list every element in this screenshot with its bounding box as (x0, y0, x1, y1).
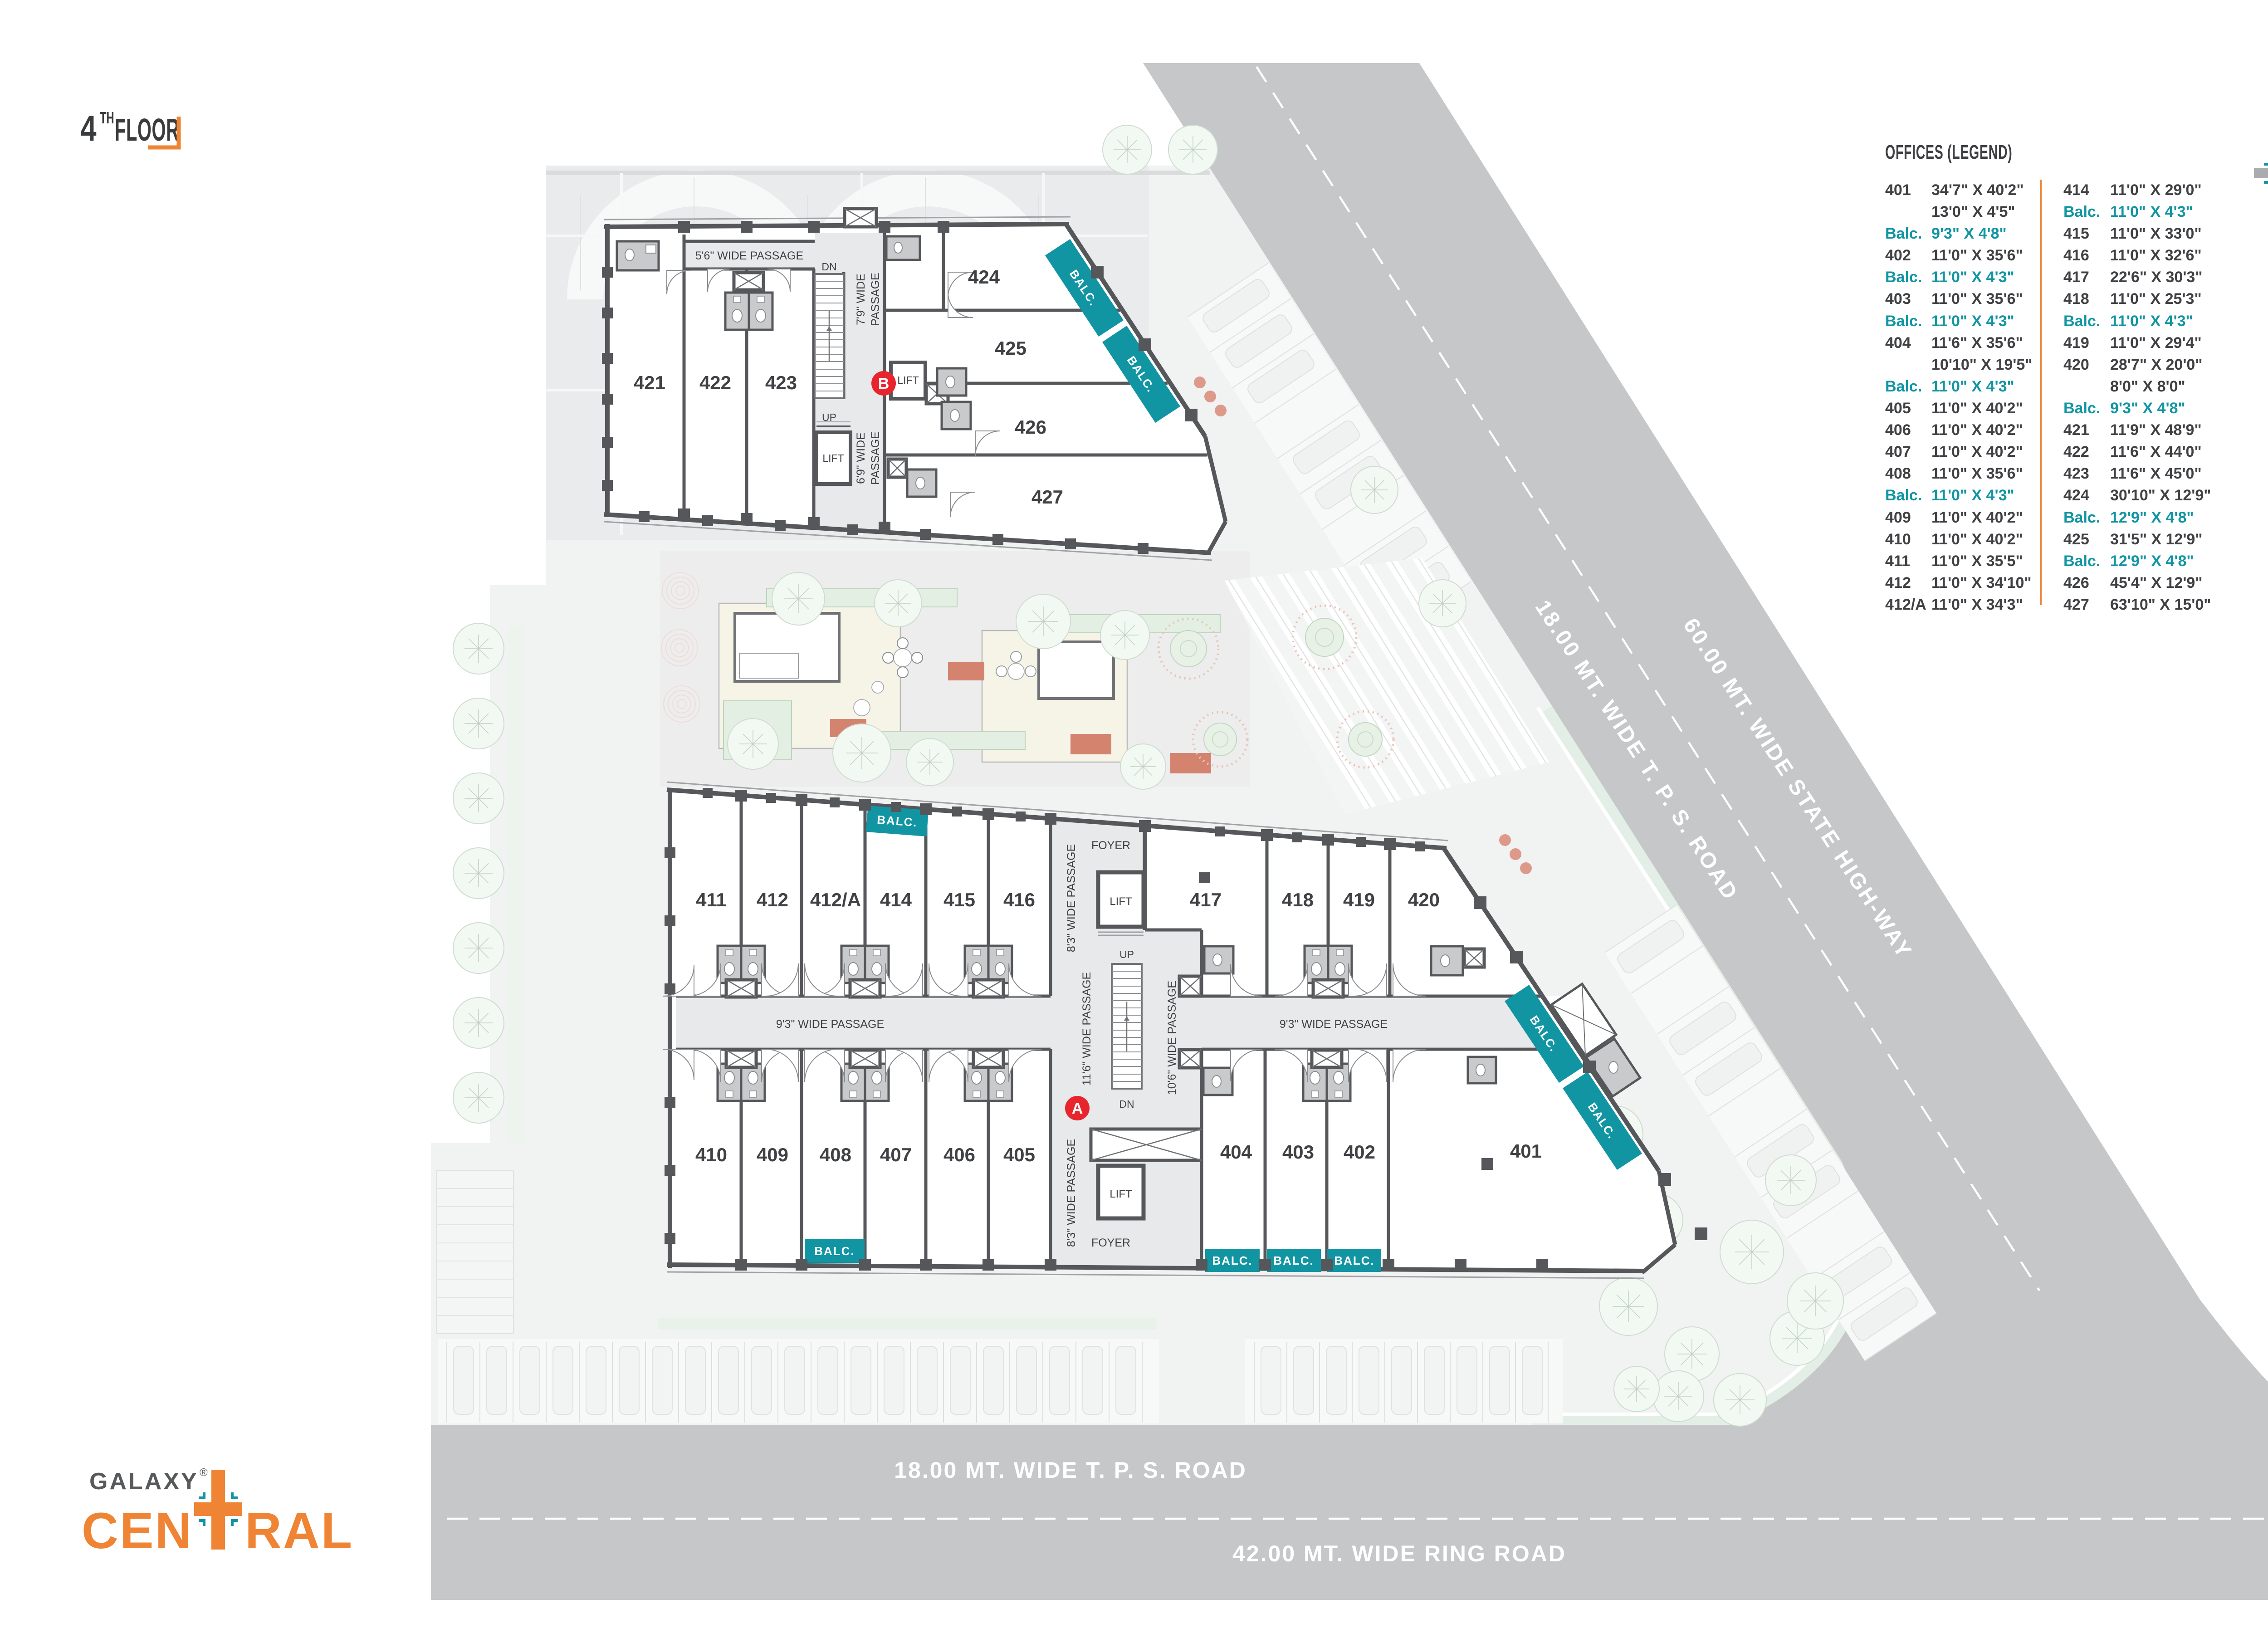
svg-text:11'0" X 4'3": 11'0" X 4'3" (1931, 378, 2014, 395)
svg-text:11'0" X 34'10": 11'0" X 34'10" (1931, 574, 2031, 592)
svg-text:Balc.: Balc. (2063, 203, 2100, 220)
svg-text:422: 422 (2063, 443, 2089, 460)
svg-text:11'0" X 40'2": 11'0" X 40'2" (1931, 531, 2023, 548)
svg-text:CEN: CEN (82, 1502, 193, 1559)
svg-text:22'6" X 30'3": 22'6" X 30'3" (2110, 269, 2202, 286)
svg-text:412/A: 412/A (810, 889, 861, 910)
svg-text:Balc.: Balc. (2063, 400, 2100, 417)
svg-text:418: 418 (1282, 889, 1314, 910)
svg-text:9'3" WIDE PASSAGE: 9'3" WIDE PASSAGE (1280, 1018, 1388, 1031)
svg-text:11'0" X 34'3": 11'0" X 34'3" (1931, 596, 2023, 613)
svg-text:409: 409 (1885, 509, 1911, 526)
svg-text:A: A (1072, 1100, 1083, 1117)
svg-text:416: 416 (2063, 247, 2089, 264)
svg-text:424: 424 (968, 266, 1000, 288)
svg-text:FOYER: FOYER (1091, 1237, 1130, 1249)
svg-text:401: 401 (1510, 1140, 1542, 1162)
svg-text:419: 419 (2063, 334, 2089, 352)
svg-text:407: 407 (1885, 443, 1911, 460)
svg-text:409: 409 (757, 1144, 788, 1165)
svg-text:FOYER: FOYER (1091, 839, 1130, 852)
svg-text:405: 405 (1003, 1144, 1035, 1165)
svg-text:Balc.: Balc. (1885, 487, 1922, 504)
svg-text:9'3" X 4'8": 9'3" X 4'8" (1931, 225, 2007, 242)
svg-text:11'0" X 40'2": 11'0" X 40'2" (1931, 421, 2023, 439)
svg-text:11'6" X 45'0": 11'6" X 45'0" (2110, 465, 2202, 482)
svg-text:421: 421 (634, 372, 665, 393)
svg-text:11'0" X 40'2": 11'0" X 40'2" (1931, 400, 2023, 417)
svg-text:11'0" X 32'6": 11'0" X 32'6" (2110, 247, 2202, 264)
svg-text:423: 423 (2063, 465, 2089, 482)
svg-text:Balc.: Balc. (1885, 269, 1922, 286)
svg-text:410: 410 (695, 1144, 727, 1165)
svg-text:DN: DN (1119, 1098, 1134, 1110)
svg-text:411: 411 (696, 889, 727, 910)
svg-text:BALC.: BALC. (1334, 1254, 1374, 1267)
svg-text:Balc.: Balc. (1885, 378, 1922, 395)
svg-text:402: 402 (1344, 1141, 1375, 1163)
svg-text:407: 407 (880, 1144, 912, 1165)
svg-text:BALC.: BALC. (814, 1244, 855, 1258)
svg-text:34'7" X 40'2": 34'7" X 40'2" (1931, 181, 2024, 199)
svg-text:11'0" X 29'4": 11'0" X 29'4" (2110, 334, 2202, 352)
svg-text:11'0" X 4'3": 11'0" X 4'3" (1931, 269, 2014, 286)
svg-text:42.00 MT. WIDE RING ROAD: 42.00 MT. WIDE RING ROAD (1232, 1541, 1566, 1566)
svg-text:404: 404 (1885, 334, 1911, 352)
svg-text:11'0" X 25'3": 11'0" X 25'3" (2110, 290, 2202, 308)
svg-text:420: 420 (1408, 889, 1440, 910)
svg-text:8'0" X 8'0": 8'0" X 8'0" (2110, 378, 2185, 395)
svg-text:403: 403 (1885, 290, 1911, 308)
svg-text:424: 424 (2063, 487, 2089, 504)
svg-text:7'9" WIDE: 7'9" WIDE (855, 274, 867, 325)
svg-text:11'9" X 48'9": 11'9" X 48'9" (2110, 421, 2202, 439)
svg-text:418: 418 (2063, 290, 2089, 308)
svg-text:B: B (878, 375, 890, 392)
svg-text:®: ® (200, 1467, 208, 1479)
svg-text:401: 401 (1885, 181, 1911, 199)
svg-text:Balc.: Balc. (2063, 552, 2100, 570)
svg-text:BALC.: BALC. (1212, 1254, 1252, 1267)
svg-text:9'3" X 4'8": 9'3" X 4'8" (2110, 400, 2185, 417)
svg-text:11'0" X 35'6": 11'0" X 35'6" (1931, 465, 2023, 482)
svg-text:9'3" WIDE PASSAGE: 9'3" WIDE PASSAGE (776, 1018, 884, 1031)
svg-text:12'9" X 4'8": 12'9" X 4'8" (2110, 552, 2194, 570)
svg-text:403: 403 (1282, 1141, 1314, 1163)
svg-text:4: 4 (80, 108, 97, 148)
svg-text:30'10" X 12'9": 30'10" X 12'9" (2110, 487, 2211, 504)
svg-text:45'4" X 12'9": 45'4" X 12'9" (2110, 574, 2202, 592)
svg-text:8'3" WIDE PASSAGE: 8'3" WIDE PASSAGE (1065, 844, 1078, 952)
svg-text:414: 414 (2063, 181, 2089, 199)
svg-text:11'0" X 4'3": 11'0" X 4'3" (2110, 203, 2193, 220)
svg-text:422: 422 (699, 372, 731, 393)
svg-text:UP: UP (1119, 949, 1134, 960)
svg-text:LIFT: LIFT (897, 374, 919, 386)
svg-text:406: 406 (943, 1144, 975, 1165)
svg-text:11'0" X 4'3": 11'0" X 4'3" (1931, 313, 2014, 330)
svg-text:412: 412 (1885, 574, 1911, 592)
svg-text:426: 426 (2063, 574, 2089, 592)
svg-text:11'0" X 4'3": 11'0" X 4'3" (1931, 487, 2014, 504)
svg-text:416: 416 (1003, 889, 1035, 910)
svg-text:11'0" X 40'2": 11'0" X 40'2" (1931, 443, 2023, 460)
svg-text:Balc.: Balc. (2063, 313, 2100, 330)
svg-text:425: 425 (995, 337, 1026, 359)
svg-text:11'0" X 40'2": 11'0" X 40'2" (1931, 509, 2023, 526)
svg-text:FLOOR: FLOOR (115, 112, 179, 148)
svg-text:12'9" X 4'8": 12'9" X 4'8" (2110, 509, 2194, 526)
svg-text:414: 414 (880, 889, 912, 910)
svg-text:11'6" X 35'6": 11'6" X 35'6" (1931, 334, 2023, 352)
svg-text:63'10" X 15'0": 63'10" X 15'0" (2110, 596, 2211, 613)
svg-text:11'6" WIDE PASSAGE: 11'6" WIDE PASSAGE (1080, 972, 1093, 1085)
svg-text:427: 427 (1031, 486, 1063, 508)
svg-text:408: 408 (820, 1144, 851, 1165)
svg-text:Balc.: Balc. (1885, 225, 1922, 242)
svg-text:LIFT: LIFT (822, 452, 844, 464)
svg-text:405: 405 (1885, 400, 1911, 417)
svg-text:28'7" X 20'0": 28'7" X 20'0" (2110, 356, 2202, 373)
svg-text:RAL: RAL (245, 1502, 353, 1559)
svg-text:425: 425 (2063, 531, 2089, 548)
svg-text:426: 426 (1015, 416, 1046, 438)
svg-text:406: 406 (1885, 421, 1911, 439)
svg-text:417: 417 (2063, 269, 2089, 286)
svg-text:5'6" WIDE PASSAGE: 5'6" WIDE PASSAGE (695, 249, 803, 262)
svg-text:427: 427 (2063, 596, 2089, 613)
svg-text:GALAXY: GALAXY (89, 1468, 199, 1495)
svg-text:423: 423 (765, 372, 797, 393)
svg-text:18.00 MT. WIDE T. P. S. ROAD: 18.00 MT. WIDE T. P. S. ROAD (894, 1457, 1247, 1483)
svg-text:Balc.: Balc. (2063, 509, 2100, 526)
svg-text:10'6" WIDE PASSAGE: 10'6" WIDE PASSAGE (1166, 981, 1178, 1095)
svg-text:8'3" WIDE PASSAGE: 8'3" WIDE PASSAGE (1065, 1139, 1078, 1247)
svg-text:412/A: 412/A (1885, 596, 1926, 613)
svg-text:DN: DN (821, 261, 836, 273)
svg-text:417: 417 (1190, 889, 1222, 910)
svg-text:408: 408 (1885, 465, 1911, 482)
svg-text:415: 415 (2063, 225, 2089, 242)
svg-text:410: 410 (1885, 531, 1911, 548)
svg-text:6'9" WIDE: 6'9" WIDE (855, 432, 867, 484)
svg-text:13'0" X 4'5": 13'0" X 4'5" (1931, 203, 2015, 220)
svg-text:411: 411 (1885, 552, 1910, 570)
svg-text:11'0" X 29'0": 11'0" X 29'0" (2110, 181, 2202, 199)
svg-text:421: 421 (2063, 421, 2089, 439)
svg-text:402: 402 (1885, 247, 1911, 264)
svg-text:LIFT: LIFT (1110, 895, 1132, 908)
svg-text:LIFT: LIFT (1110, 1188, 1132, 1200)
svg-text:11'0" X 35'6": 11'0" X 35'6" (1931, 247, 2023, 264)
svg-text:Balc.: Balc. (1885, 313, 1922, 330)
svg-text:PASSAGE: PASSAGE (869, 273, 882, 326)
svg-text:PASSAGE: PASSAGE (869, 431, 882, 485)
svg-text:31'5" X 12'9": 31'5" X 12'9" (2110, 531, 2202, 548)
svg-text:11'0" X 4'3": 11'0" X 4'3" (2110, 313, 2193, 330)
svg-text:11'0" X 35'5": 11'0" X 35'5" (1931, 552, 2023, 570)
svg-text:419: 419 (1343, 889, 1375, 910)
svg-text:BALC.: BALC. (1273, 1254, 1314, 1267)
svg-text:420: 420 (2063, 356, 2089, 373)
svg-text:412: 412 (757, 889, 788, 910)
svg-text:11'0" X 33'0": 11'0" X 33'0" (2110, 225, 2202, 242)
svg-text:OFFICES (LEGEND): OFFICES (LEGEND) (1885, 141, 2012, 163)
svg-text:415: 415 (943, 889, 975, 910)
svg-text:404: 404 (1220, 1141, 1252, 1163)
svg-text:11'0" X 35'6": 11'0" X 35'6" (1931, 290, 2023, 308)
svg-text:11'6" X 44'0": 11'6" X 44'0" (2110, 443, 2202, 460)
svg-text:10'10" X 19'5": 10'10" X 19'5" (1931, 356, 2032, 373)
svg-text:TH: TH (100, 109, 114, 127)
